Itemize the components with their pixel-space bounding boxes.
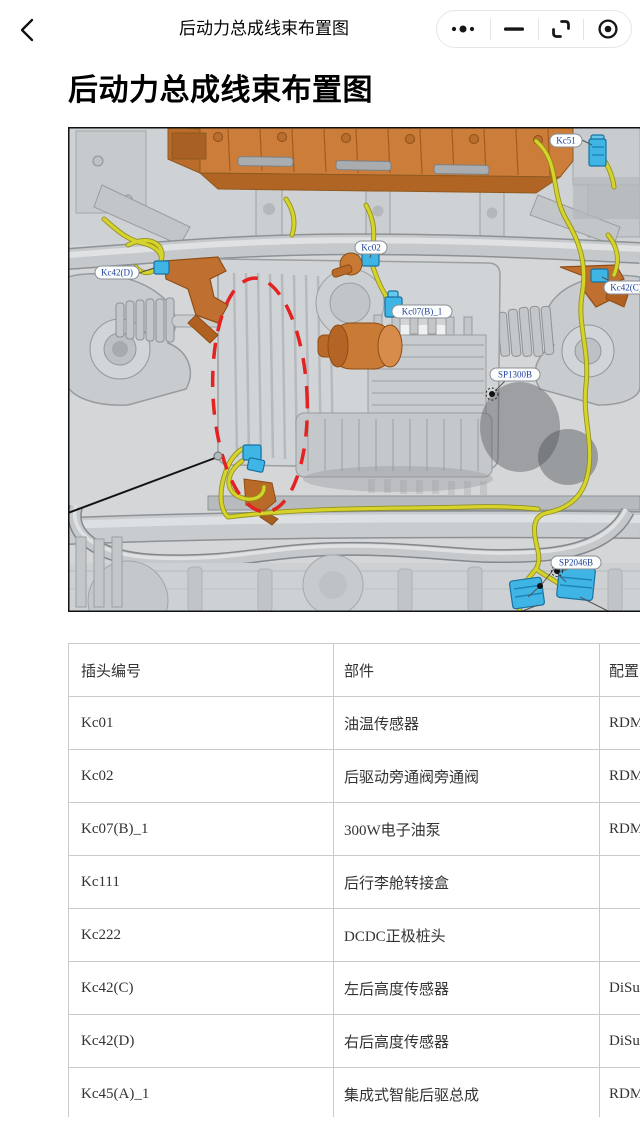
table-cell: 配置 — [600, 644, 640, 697]
restore-icon — [550, 18, 572, 40]
minimize-icon — [502, 19, 526, 39]
svg-text:Kc42(D): Kc42(D) — [101, 268, 133, 278]
table-cell: 油温传感器 — [334, 697, 600, 750]
table-cell: Kc222 — [69, 909, 334, 962]
diagram-label-Kc51: Kc51 — [550, 134, 582, 147]
table-cell: Kc07(B)_1 — [69, 803, 334, 856]
diagram-label-Kc42(C): Kc42(C) — [604, 281, 640, 294]
connector-table: 插头编号部件配置 Kc01油温传感器RDMKc02后驱动旁通阀旁通阀RDMKc0… — [68, 643, 640, 1117]
table-cell: Kc01 — [69, 697, 334, 750]
table-row: Kc45(A)_1集成式智能后驱总成RDM — [69, 1068, 640, 1118]
table-cell: DiSu — [600, 962, 640, 1015]
underbody-cad-render: Kc51Kc02Kc42(D)Kc42(C)Kc07(B)_1SP1300BSP… — [68, 127, 640, 612]
svg-text:Kc07(B)_1: Kc07(B)_1 — [402, 307, 443, 317]
page-title: 后动力总成线束布置图 — [68, 72, 640, 110]
table-row: Kc222DCDC正极桩头 — [69, 909, 640, 962]
table-cell: Kc111 — [69, 856, 334, 909]
diagram-label-Kc07(B)_1: Kc07(B)_1 — [392, 305, 452, 318]
table-cell: Kc45(A)_1 — [69, 1068, 334, 1118]
table-cell: DCDC正极桩头 — [334, 909, 600, 962]
svg-text:SP1300B: SP1300B — [498, 370, 532, 380]
diagram-label-SP2046B: SP2046B — [551, 556, 601, 569]
table-cell: 后行李舱转接盒 — [334, 856, 600, 909]
table-row: Kc02后驱动旁通阀旁通阀RDM — [69, 750, 640, 803]
table-row: Kc42(D)右后高度传感器DiSu — [69, 1015, 640, 1068]
diagram-label-Kc02: Kc02 — [355, 241, 387, 254]
table-row: Kc07(B)_1300W电子油泵RDM — [69, 803, 640, 856]
table-row: Kc01油温传感器RDM — [69, 697, 640, 750]
table-row: Kc111后行李舱转接盒 — [69, 856, 640, 909]
svg-text:Kc51: Kc51 — [556, 136, 576, 146]
more-button[interactable] — [437, 10, 490, 48]
table-row: Kc42(C)左后高度传感器DiSu — [69, 962, 640, 1015]
circle-dot-icon — [596, 17, 620, 41]
table-cell: 后驱动旁通阀旁通阀 — [334, 750, 600, 803]
table-cell: RDM — [600, 750, 640, 803]
table-cell: Kc02 — [69, 750, 334, 803]
diagram-label-Kc42(D): Kc42(D) — [95, 266, 139, 279]
svg-text:Kc02: Kc02 — [361, 243, 381, 253]
table-cell: 左后高度传感器 — [334, 962, 600, 1015]
table-cell: 集成式智能后驱总成 — [334, 1068, 600, 1118]
table-cell: 部件 — [334, 644, 600, 697]
miniprogram-capsule — [436, 10, 632, 48]
table-header-row: 插头编号部件配置 — [69, 644, 640, 697]
table-cell: RDM — [600, 803, 640, 856]
table-cell: Kc42(C) — [69, 962, 334, 1015]
table-cell: 插头编号 — [69, 644, 334, 697]
navbar: 后动力总成线束布置图 — [0, 0, 640, 58]
table-cell: RDM — [600, 697, 640, 750]
restore-button[interactable] — [539, 10, 584, 48]
table-header-row: 插头编号部件配置 — [69, 644, 640, 697]
table-cell — [600, 909, 640, 962]
table-cell: 300W电子油泵 — [334, 803, 600, 856]
table-cell — [600, 856, 640, 909]
diagram-label-SP1300B: SP1300B — [490, 368, 540, 381]
table-cell: RDM — [600, 1068, 640, 1118]
more-icon — [448, 19, 478, 39]
table-body: Kc01油温传感器RDMKc02后驱动旁通阀旁通阀RDMKc07(B)_1300… — [69, 697, 640, 1118]
table-cell: DiSu — [600, 1015, 640, 1068]
minimize-button[interactable] — [491, 10, 538, 48]
table-cell: Kc42(D) — [69, 1015, 334, 1068]
table-cell: 右后高度传感器 — [334, 1015, 600, 1068]
svg-text:Kc42(C): Kc42(C) — [610, 283, 640, 293]
connector-table-wrap: 插头编号部件配置 Kc01油温传感器RDMKc02后驱动旁通阀旁通阀RDMKc0… — [68, 643, 640, 1117]
harness-diagram-image: Kc51Kc02Kc42(D)Kc42(C)Kc07(B)_1SP1300BSP… — [68, 127, 640, 612]
svg-text:SP2046B: SP2046B — [559, 558, 593, 568]
capsule-target-button[interactable] — [584, 10, 631, 48]
